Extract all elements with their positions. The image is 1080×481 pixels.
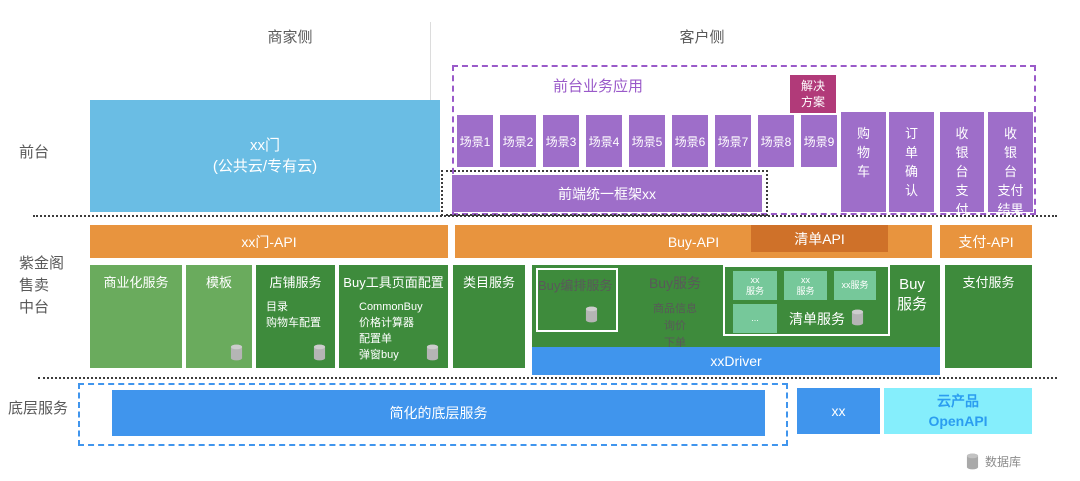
buy-orchestration-box: Buy编排服务: [536, 268, 618, 332]
shop-service-box: 店铺服务 目录 购物车配置: [256, 265, 335, 368]
category-service-box: 类目服务: [453, 265, 525, 368]
database-icon: [313, 344, 326, 361]
list-service-title: 清单服务: [789, 309, 845, 329]
list-service-box: xx 服务 xx 服务 xx服务 ... 清单服务: [723, 265, 890, 336]
cloud-openapi-box: 云产品 OpenAPI: [884, 388, 1032, 434]
xx-service-box: xx服务: [834, 271, 876, 300]
database-icon: [426, 344, 439, 361]
commercial-service-title: 商业化服务: [90, 265, 182, 291]
legend-database-label: 数据库: [985, 453, 1021, 470]
buy-service-items: 商品信息 询价 下单: [620, 293, 730, 352]
solution-box: 解决 方案: [790, 75, 836, 113]
scene-box: 场景5: [629, 115, 665, 167]
buy-service-title: Buy服务: [620, 271, 730, 293]
scene-row: 场景1 场景2 场景3 场景4 场景5 场景6 场景7 场景8 场景9: [457, 115, 837, 167]
buy-tools-items: CommonBuy 价格计算器 配置单 弹窗buy ...: [339, 291, 448, 379]
commercial-service-box: 商业化服务: [90, 265, 182, 368]
payment-service-title: 支付服务: [945, 265, 1032, 291]
portal-api-bar: xx门-API: [90, 225, 448, 258]
buy-tools-box: Buy工具页面配置 CommonBuy 价格计算器 配置单 弹窗buy ...: [339, 265, 448, 368]
buy-service-block: Buy服务 商品信息 询价 下单: [620, 271, 730, 352]
scene-box: 场景6: [672, 115, 708, 167]
shop-service-items: 目录 购物车配置: [256, 291, 335, 331]
customer-side-header: 客户侧: [642, 26, 762, 47]
bottom-services-label: 底层服务: [8, 398, 68, 420]
front-stage-label: 前台: [19, 142, 49, 164]
database-icon: [851, 309, 864, 326]
xx-service-box: xx 服务: [733, 271, 777, 300]
scene-box: 场景9: [801, 115, 837, 167]
mid-platform-label: 紫金阁 售卖 中台: [19, 253, 64, 319]
checkout-pay-result-column: 收 银 台 支付 结果: [988, 112, 1033, 212]
scene-box: 场景3: [543, 115, 579, 167]
shop-service-title: 店铺服务: [256, 265, 335, 291]
buy-tools-title: Buy工具页面配置: [339, 265, 448, 291]
portal-box: xx门 (公共云/专有云): [90, 100, 440, 212]
merchant-side-header: 商家侧: [230, 26, 350, 47]
database-icon: [966, 453, 979, 470]
scene-box: 场景1: [457, 115, 493, 167]
simplified-bottom-services-bar: 简化的底层服务: [112, 390, 765, 436]
checkout-pay-column: 收 银 台 支 付: [940, 112, 984, 212]
scene-box: 场景7: [715, 115, 751, 167]
frontend-framework-bar: 前端统一框架xx: [452, 175, 762, 212]
template-service-title: 模板: [186, 265, 252, 291]
order-confirm-column: 订 单 确 认: [889, 112, 934, 212]
cart-column: 购 物 车: [841, 112, 886, 212]
xx-service-box: xx 服务: [784, 271, 827, 300]
buy-service-right-label: Buy 服务: [888, 275, 936, 315]
architecture-diagram: 商家侧 客户侧 前台 紫金阁 售卖 中台 底层服务 xx门 (公共云/专有云) …: [0, 0, 1080, 481]
category-service-title: 类目服务: [453, 265, 525, 291]
xx-service-row: xx 服务 xx 服务 xx服务: [733, 271, 876, 300]
more-services-box: ...: [733, 304, 777, 333]
template-service-box: 模板: [186, 265, 252, 368]
frontend-app-title: 前台业务应用: [553, 75, 643, 96]
scene-box: 场景2: [500, 115, 536, 167]
database-icon: [585, 306, 598, 323]
buy-service-container: Buy编排服务 Buy服务 商品信息 询价 下单 xx 服务 xx 服务 xx服…: [532, 265, 940, 375]
payment-service-box: 支付服务: [945, 265, 1032, 368]
dotted-separator-bottom: [38, 377, 1057, 379]
legend: 数据库: [966, 453, 1021, 470]
xx-bottom-box: xx: [797, 388, 880, 434]
buy-orchestration-title: Buy编排服务: [538, 270, 616, 294]
driver-bar: xxDriver: [532, 347, 940, 375]
pay-api-bar: 支付-API: [940, 225, 1032, 258]
scene-box: 场景4: [586, 115, 622, 167]
database-icon: [230, 344, 243, 361]
scene-box: 场景8: [758, 115, 794, 167]
list-api-bar: 清单API: [751, 225, 888, 252]
